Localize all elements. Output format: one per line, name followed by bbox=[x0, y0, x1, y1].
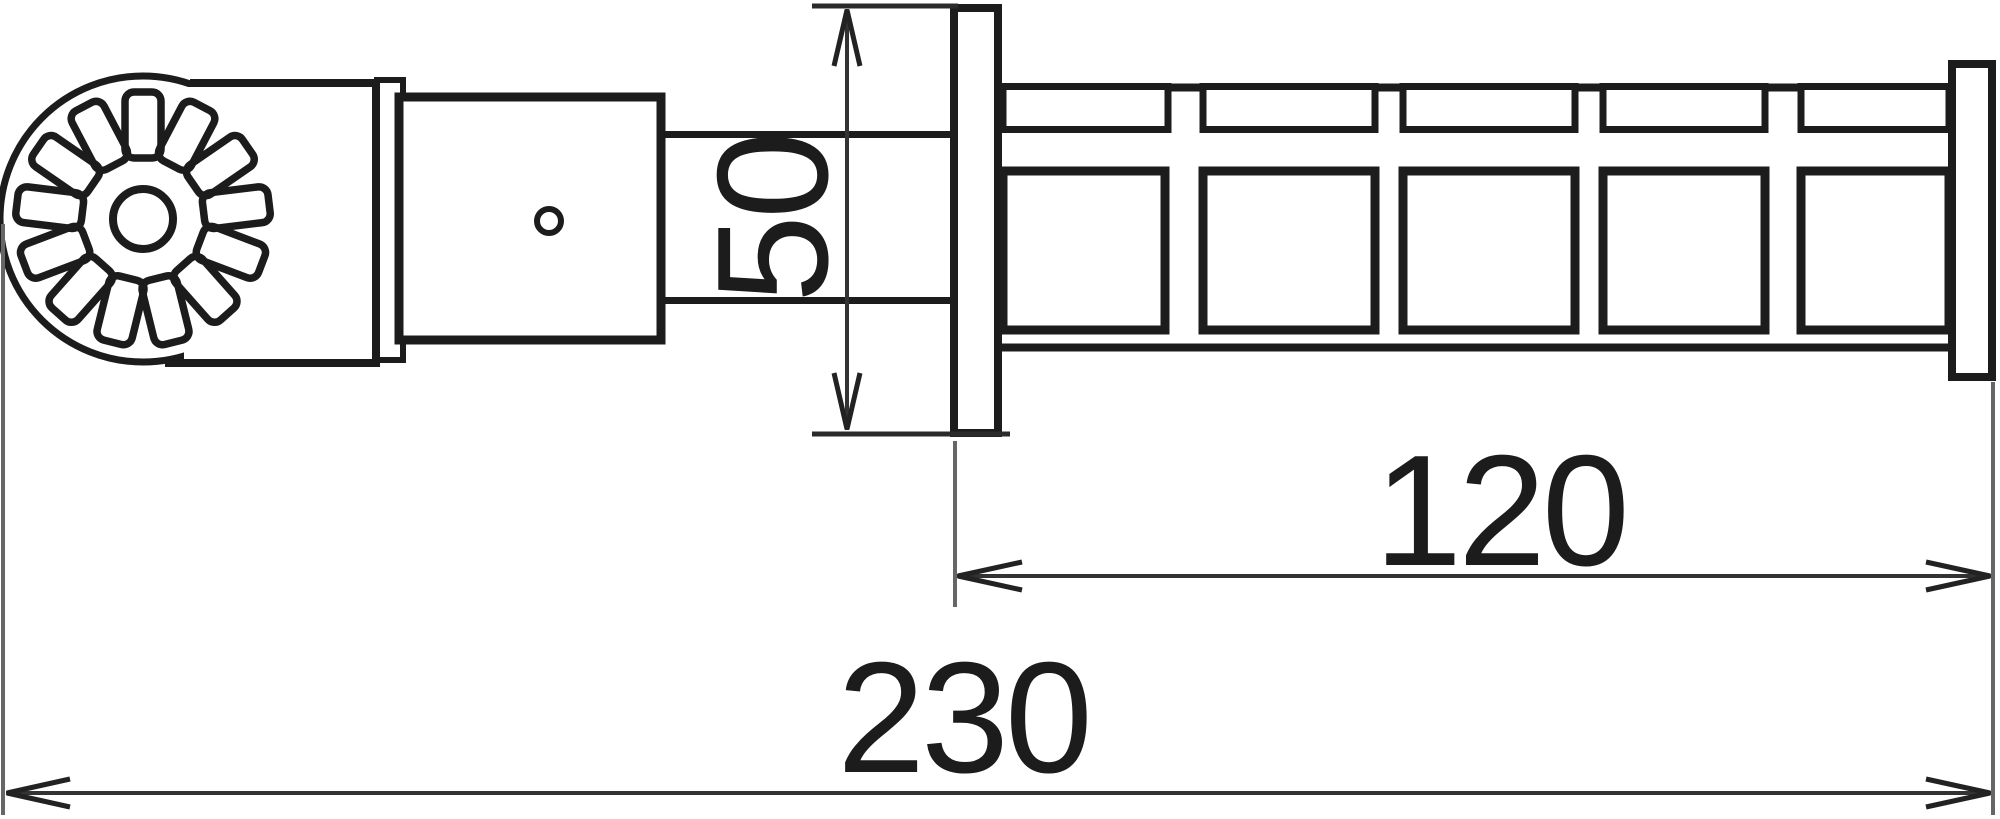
handle-slot bbox=[1203, 87, 1375, 130]
dimension-drawing: 50 120 230 bbox=[0, 0, 2000, 819]
technical-drawing-canvas: 50 120 230 bbox=[0, 0, 2000, 819]
dimension-label-230: 230 bbox=[837, 630, 1089, 806]
flange-plate bbox=[954, 8, 998, 433]
handle-square-opening bbox=[1801, 171, 1949, 330]
body-block bbox=[399, 97, 661, 340]
handle-square-opening bbox=[1603, 171, 1765, 330]
handle-slot-row bbox=[1003, 87, 1949, 130]
dimension-label-120: 120 bbox=[1374, 423, 1626, 599]
handle-slot bbox=[1403, 87, 1575, 130]
handle-square-opening bbox=[1003, 171, 1165, 330]
handle-slot bbox=[1603, 87, 1765, 130]
dimension-label-50: 50 bbox=[685, 135, 861, 303]
handle-square-opening bbox=[1203, 171, 1375, 330]
handle-square-row bbox=[1003, 171, 1949, 330]
handle-square-opening bbox=[1403, 171, 1575, 330]
handle-slot bbox=[1003, 87, 1168, 130]
handle-slot bbox=[1801, 87, 1949, 130]
rosette-center-hole bbox=[113, 189, 173, 249]
body-block-hole bbox=[537, 209, 561, 233]
handle-end-cap bbox=[1952, 64, 1992, 377]
